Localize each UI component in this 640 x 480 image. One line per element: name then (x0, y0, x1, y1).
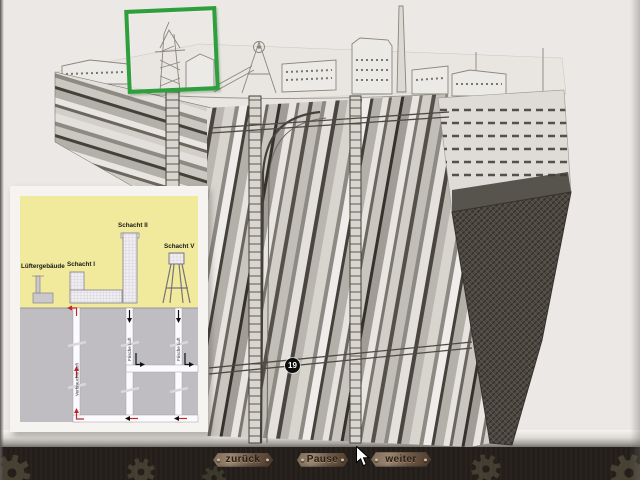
label-shaft5: Schacht V (164, 243, 195, 250)
gear-icon (466, 449, 506, 480)
mine-schematic-inset: Lüftergebäude Schacht I Schacht II Schac… (10, 186, 208, 432)
selection-highlight-frame[interactable] (124, 6, 220, 94)
gear-icon (605, 449, 640, 480)
label-fan-building: Lüftergebäude (21, 263, 65, 270)
label-shaft1: Schacht I (67, 261, 95, 268)
gear-icon (201, 465, 228, 480)
back-button-label: zurück (226, 455, 261, 465)
label-shaft2: Schacht II (118, 222, 148, 229)
pause-button[interactable]: Pause (297, 451, 348, 469)
marker-19-label: 19 (288, 361, 297, 370)
label-air-middle: Frische Luft (127, 337, 132, 361)
block-ledge (438, 90, 571, 212)
label-air-right: Frische Luft (176, 337, 181, 361)
next-button-label: weiter (385, 455, 416, 465)
navigation-bar: zurück Pause weiter (0, 447, 640, 480)
shaft2-tower (121, 233, 139, 303)
marker-19-badge[interactable]: 19 (285, 358, 300, 373)
gear-icon (0, 451, 34, 480)
back-button[interactable]: zurück (213, 451, 273, 469)
chimney (397, 6, 406, 92)
screen: 19 (0, 0, 640, 480)
label-air-left: Verbrauchte Luft (75, 362, 80, 396)
pause-button-label: Pause (307, 455, 338, 465)
next-button[interactable]: weiter (371, 450, 431, 469)
gear-icon (122, 453, 159, 480)
